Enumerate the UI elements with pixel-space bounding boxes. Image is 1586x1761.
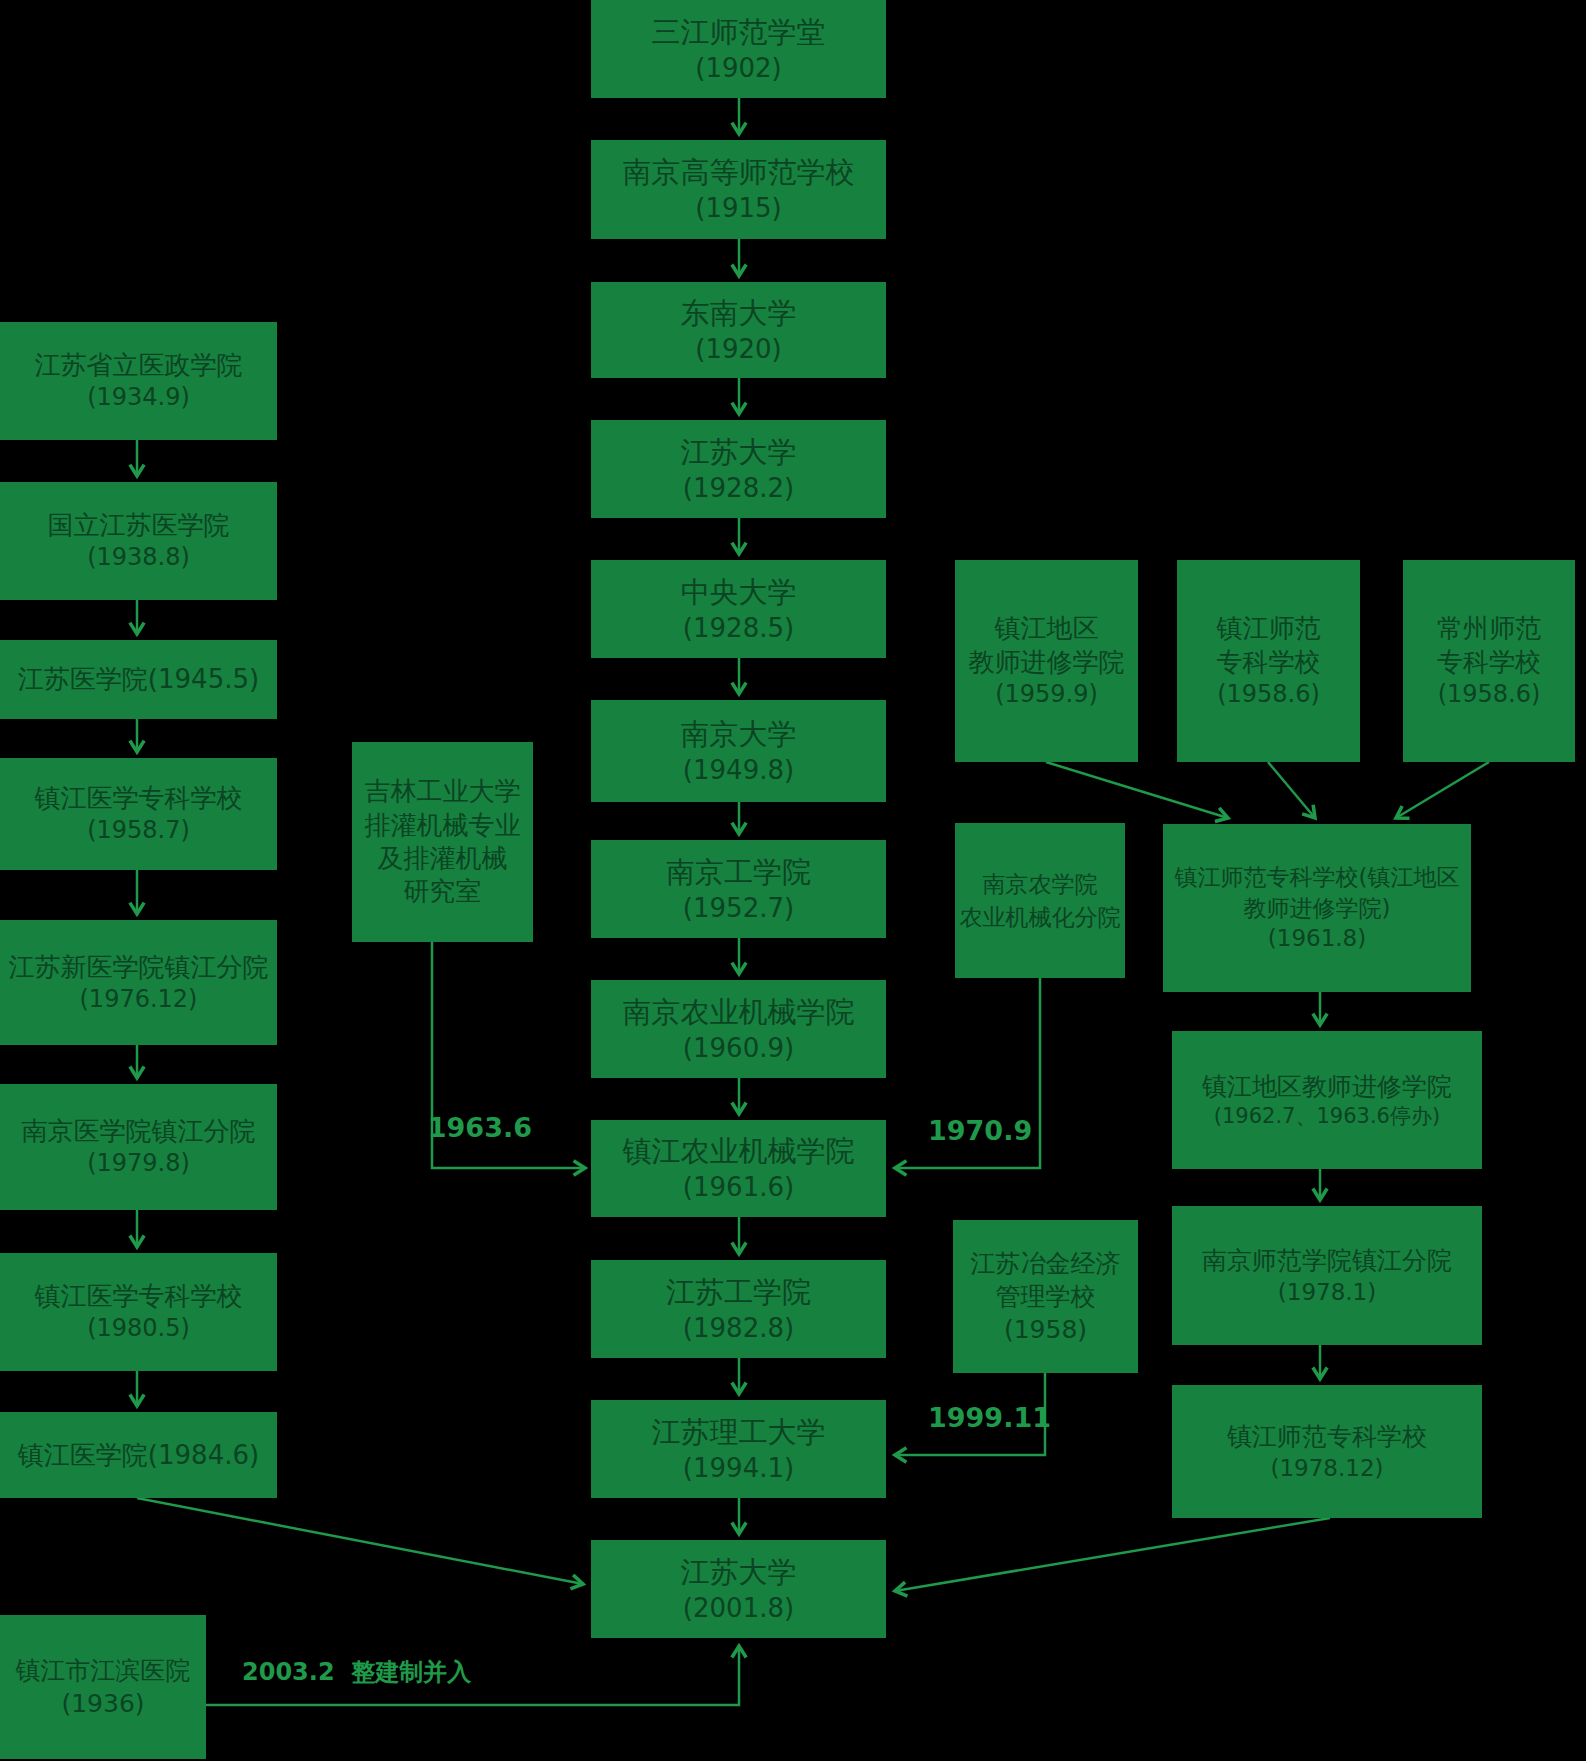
- node-line: 教师进修学院): [1244, 893, 1391, 923]
- node-jilin-tech-irrigation-machinery: 吉林工业大学 排灌机械专业 及排灌机械 研究室: [352, 742, 533, 942]
- node-title: 镇江地区教师进修学院: [1202, 1070, 1452, 1103]
- label-1999-11: 1999.11: [928, 1402, 1051, 1433]
- node-title: 江苏新医学院镇江分院: [9, 950, 269, 984]
- node-jiangsu-university-2001: 江苏大学 (2001.8): [591, 1540, 886, 1638]
- node-title: 南京大学: [681, 715, 797, 753]
- node-zhenjiang-normal-college-merged: 镇江师范专科学校(镇江地区 教师进修学院) (1961.8): [1163, 824, 1471, 992]
- node-zhenjiang-jiangbin-hospital: 镇江市江滨医院 (1936): [0, 1615, 206, 1759]
- node-nanjing-medical-college-zhenjiang-branch: 南京医学院镇江分院 (1979.8): [0, 1084, 277, 1210]
- arrow-l8-c12: [137, 1498, 583, 1584]
- node-title: 江苏省立医政学院: [35, 348, 243, 382]
- node-title: 东南大学: [681, 294, 797, 332]
- node-line: 镇江师范专科学校(镇江地区: [1175, 862, 1460, 892]
- label-1963-6: 1963.6: [395, 1112, 532, 1143]
- label-2003-2: 2003.2 整建制并入: [242, 1656, 471, 1688]
- node-title: 镇江医学专科学校: [35, 781, 243, 815]
- node-year: (1958.7): [87, 815, 190, 847]
- node-title: 南京高等师范学校: [623, 153, 855, 191]
- node-year: (1962.7、1963.6停办): [1214, 1103, 1440, 1131]
- node-central-university: 中央大学 (1928.5): [591, 560, 886, 658]
- node-jiangsu-university-1928: 江苏大学 (1928.2): [591, 420, 886, 518]
- node-year: (1952.7): [683, 891, 794, 925]
- node-zhenjiang-agricultural-machinery-college: 镇江农业机械学院 (1961.6): [591, 1120, 886, 1217]
- node-year: (1976.12): [80, 984, 198, 1016]
- node-year: (1978.12): [1270, 1453, 1383, 1483]
- node-year: (2001.8): [683, 1591, 794, 1625]
- node-year: (1979.8): [87, 1148, 190, 1180]
- node-southeast-university: 东南大学 (1920): [591, 282, 886, 378]
- node-year: (1958.6): [1438, 679, 1541, 711]
- node-title: 南京师范学院镇江分院: [1202, 1244, 1452, 1277]
- node-year: (1915): [695, 191, 781, 225]
- node-line: 南京农学院: [983, 868, 1098, 900]
- node-title: 三江师范学堂: [652, 13, 826, 51]
- node-jiangsu-medical-college: 江苏医学院(1945.5): [0, 640, 277, 719]
- node-zhenjiang-normal-college-1978: 镇江师范专科学校 (1978.12): [1172, 1385, 1482, 1518]
- arrow-r4-c12: [895, 1518, 1330, 1591]
- node-jiangsu-institute-of-technology: 江苏工学院 (1982.8): [591, 1260, 886, 1358]
- node-year: (1982.8): [683, 1311, 794, 1345]
- node-nanjing-agricultural-college-mechanization-branch: 南京农学院 农业机械化分院: [955, 823, 1125, 978]
- node-year: (1980.5): [87, 1313, 190, 1345]
- node-line: 专科学校: [1437, 645, 1541, 679]
- node-title: 江苏大学: [681, 433, 797, 471]
- node-sanjiang-normal-school: 三江师范学堂 (1902): [591, 0, 886, 98]
- node-nanjing-institute-of-technology: 南京工学院 (1952.7): [591, 840, 886, 938]
- node-title: 江苏理工大学: [652, 1413, 826, 1451]
- node-year: (1960.9): [683, 1031, 794, 1065]
- node-year: (1936): [61, 1687, 144, 1720]
- node-zhenjiang-medical-school-1958: 镇江医学专科学校 (1958.7): [0, 758, 277, 870]
- node-title: 江苏工学院: [666, 1273, 811, 1311]
- node-year: (1902): [695, 51, 781, 85]
- node-title: 镇江医学专科学校: [35, 1279, 243, 1313]
- node-jiangsu-new-medical-college-zhenjiang-branch: 江苏新医学院镇江分院 (1976.12): [0, 920, 277, 1045]
- node-year: (1938.8): [87, 542, 190, 574]
- node-title: 国立江苏医学院: [48, 508, 230, 542]
- node-zhenjiang-medical-college: 镇江医学院(1984.6): [0, 1412, 277, 1498]
- node-year: (1958): [1004, 1313, 1087, 1346]
- node-jiangsu-provincial-medical-college: 江苏省立医政学院 (1934.9): [0, 322, 277, 440]
- node-changzhou-normal-school: 常州师范 专科学校 (1958.6): [1403, 560, 1575, 762]
- node-nanjing-university: 南京大学 (1949.8): [591, 700, 886, 802]
- node-national-jiangsu-medical-college: 国立江苏医学院 (1938.8): [0, 482, 277, 600]
- node-line: 排灌机械专业: [365, 809, 521, 842]
- history-flowchart: 三江师范学堂 (1902) 南京高等师范学校 (1915) 东南大学 (1920…: [0, 0, 1586, 1761]
- node-title: 江苏大学: [681, 1553, 797, 1591]
- node-year: (1978.1): [1278, 1277, 1376, 1307]
- node-year: (1928.2): [683, 471, 794, 505]
- node-year: (1949.8): [683, 753, 794, 787]
- node-year: (1994.1): [683, 1451, 794, 1485]
- node-zhenjiang-normal-school: 镇江师范 专科学校 (1958.6): [1177, 560, 1360, 762]
- node-title: 中央大学: [681, 573, 797, 611]
- node-zhenjiang-teachers-training-college: 镇江地区 教师进修学院 (1959.9): [955, 560, 1138, 762]
- node-line: 教师进修学院: [969, 645, 1125, 679]
- node-jiangsu-polytechnic-university: 江苏理工大学 (1994.1): [591, 1400, 886, 1498]
- node-line: 研究室: [404, 875, 482, 908]
- node-title: 南京农业机械学院: [623, 993, 855, 1031]
- node-year: (1958.6): [1217, 679, 1320, 711]
- node-zhenjiang-teachers-college-suspended: 镇江地区教师进修学院 (1962.7、1963.6停办): [1172, 1031, 1482, 1169]
- node-year: (1920): [695, 332, 781, 366]
- node-line: 镇江地区: [995, 611, 1099, 645]
- node-line: 农业机械化分院: [960, 901, 1121, 933]
- node-title: 南京工学院: [666, 853, 811, 891]
- node-title: 南京医学院镇江分院: [22, 1114, 256, 1148]
- node-line: 专科学校: [1217, 645, 1321, 679]
- node-title: 镇江农业机械学院: [623, 1132, 855, 1170]
- node-line: 江苏冶金经济: [971, 1247, 1121, 1280]
- node-zhenjiang-medical-school-1980: 镇江医学专科学校 (1980.5): [0, 1253, 277, 1371]
- node-nanjing-normal-college-zhenjiang-branch: 南京师范学院镇江分院 (1978.1): [1172, 1206, 1482, 1345]
- node-line: 常州师范: [1437, 611, 1541, 645]
- arrow-rt1-r1: [1046, 762, 1228, 818]
- arrow-rt3-r1: [1396, 762, 1489, 818]
- node-year: (1961.6): [683, 1170, 794, 1204]
- node-title: 镇江师范专科学校: [1227, 1420, 1427, 1453]
- node-year: (1928.5): [683, 611, 794, 645]
- node-jiangsu-metallurgy-economic-school: 江苏冶金经济 管理学校 (1958): [953, 1220, 1138, 1373]
- node-year: (1934.9): [87, 382, 190, 414]
- node-line: 镇江师范: [1217, 611, 1321, 645]
- node-year: (1961.8): [1268, 923, 1366, 953]
- node-line: 吉林工业大学: [365, 775, 521, 808]
- node-title: 江苏医学院(1945.5): [18, 662, 259, 696]
- node-nanjing-agricultural-machinery-college: 南京农业机械学院 (1960.9): [591, 980, 886, 1078]
- arrow-rt2-r1: [1268, 762, 1315, 818]
- node-year: (1959.9): [995, 679, 1098, 711]
- node-line: 管理学校: [996, 1280, 1096, 1313]
- node-title: 镇江市江滨医院: [16, 1654, 191, 1687]
- node-line: 及排灌机械: [378, 842, 508, 875]
- node-nanjing-higher-normal-school: 南京高等师范学校 (1915): [591, 140, 886, 239]
- node-title: 镇江医学院(1984.6): [18, 1438, 259, 1472]
- label-1970-9: 1970.9: [928, 1115, 1032, 1146]
